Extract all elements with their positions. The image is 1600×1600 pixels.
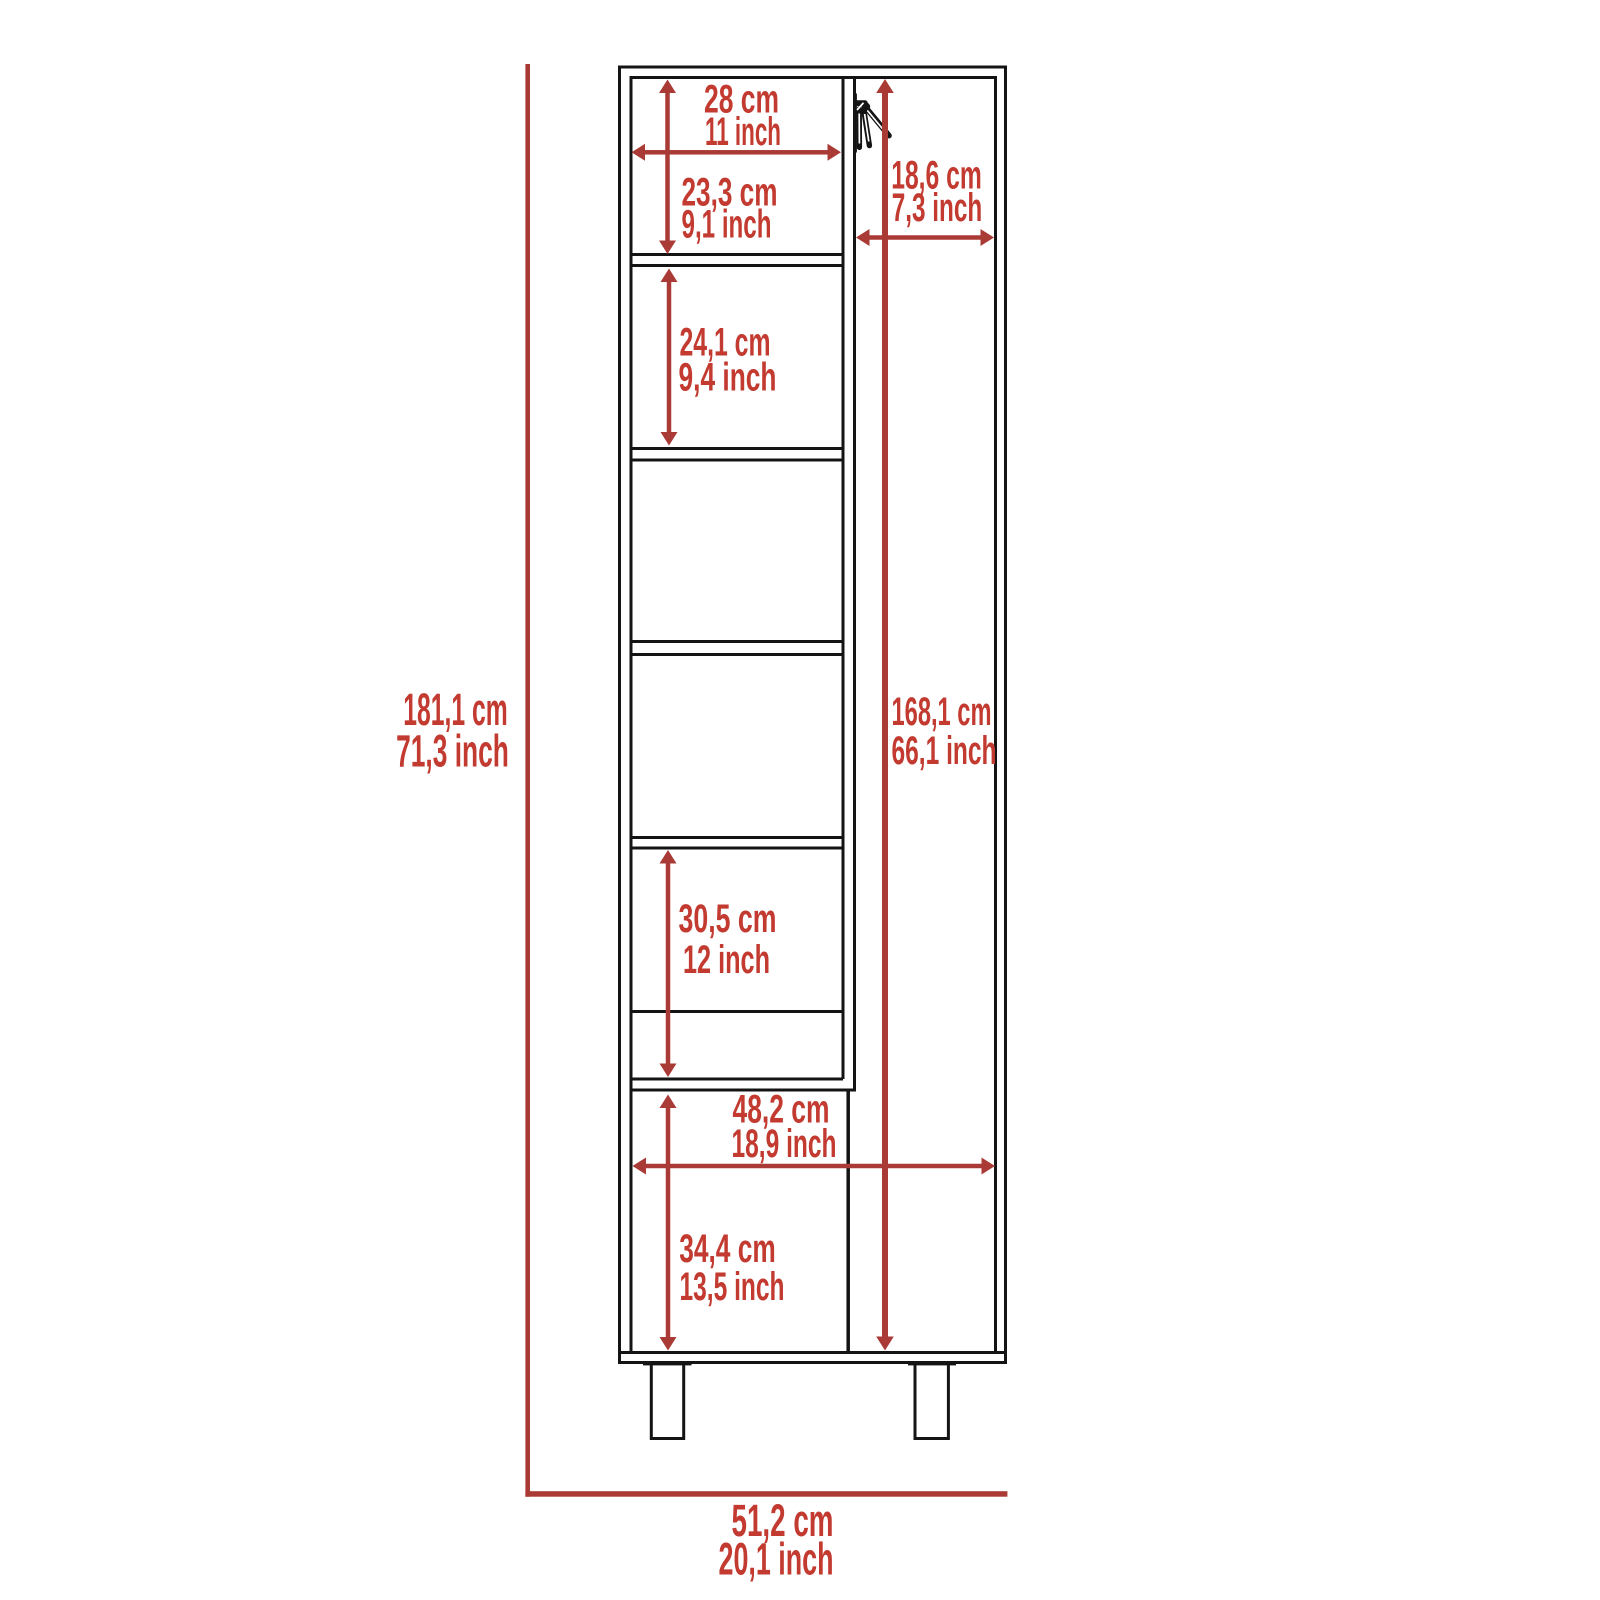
svg-text:12 inch: 12 inch	[683, 938, 770, 982]
svg-text:168,1 cm: 168,1 cm	[892, 690, 992, 734]
svg-text:18,9 inch: 18,9 inch	[732, 1122, 837, 1166]
svg-text:9,4 inch: 9,4 inch	[679, 356, 777, 400]
svg-text:71,3 inch: 71,3 inch	[396, 726, 509, 777]
svg-text:13,5 inch: 13,5 inch	[680, 1265, 785, 1309]
svg-text:30,5 cm: 30,5 cm	[679, 897, 777, 941]
svg-text:11 inch: 11 inch	[705, 110, 781, 154]
svg-text:9,1 inch: 9,1 inch	[682, 203, 772, 247]
svg-text:7,3 inch: 7,3 inch	[892, 186, 983, 230]
svg-text:66,1 inch: 66,1 inch	[892, 729, 997, 773]
svg-text:20,1 inch: 20,1 inch	[719, 1534, 834, 1585]
